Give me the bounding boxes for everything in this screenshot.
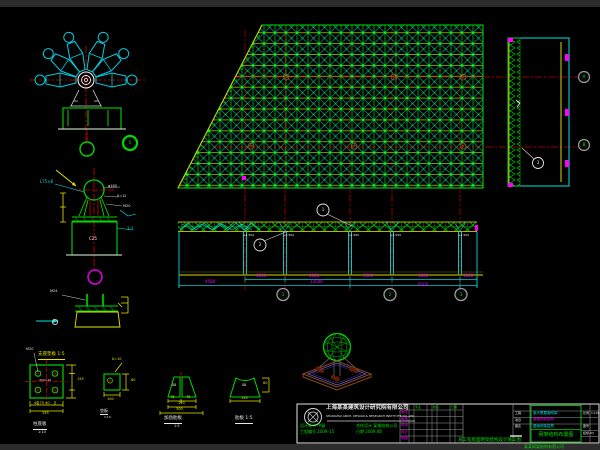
bottom-caption: 某某网架结构有限公司 xyxy=(524,445,564,449)
drawing-number: 结施-03 xyxy=(583,432,594,435)
detail-balloon-number: 1 xyxy=(319,208,327,212)
leader-label: δ=12 xyxy=(117,195,127,199)
dim-text: 150 xyxy=(178,402,185,406)
building-elevation xyxy=(178,195,483,301)
leader-label: δ=10 xyxy=(112,358,122,362)
sig-row-label: 校对 xyxy=(401,424,408,428)
anchor-pedestal-detail xyxy=(36,294,128,327)
grid-bubble-circle xyxy=(88,270,102,284)
sig-row-label: 审定 xyxy=(401,411,408,415)
grid-bubble-circle xyxy=(80,142,94,156)
certificate-line: 合作设计 某钢结构公司 xyxy=(356,424,397,428)
field-label: 比例 xyxy=(583,412,589,415)
bottom-caption: 某工程屋面网架结构设计施工图 xyxy=(458,439,521,444)
drawing-title: 网架结构布置图 xyxy=(531,433,581,438)
bolt-leader-label: M24 xyxy=(50,290,57,294)
grid-bubble-label: B xyxy=(580,143,588,147)
grid-bubble-label: 1 xyxy=(279,293,287,297)
thickness-label: δ8 xyxy=(172,384,176,388)
dim-text: 100 xyxy=(107,398,114,402)
dim-text: 60 xyxy=(131,379,135,383)
material-label: C25 xyxy=(89,237,97,241)
detail-scale: 1:10 xyxy=(38,431,46,435)
field-label: 图名 xyxy=(515,425,521,428)
dim-text: 3000 xyxy=(256,274,266,278)
washer-plate-detail xyxy=(104,363,129,397)
angle-leader-label: L75×6 xyxy=(40,180,53,184)
dim-text: 1500 xyxy=(463,274,473,278)
drawing-subtitle: 屋面网架结构 xyxy=(533,425,554,429)
dim-text: 4500 xyxy=(205,280,215,284)
sig-row-label: 审核 xyxy=(401,418,408,422)
field-label: 项目 xyxy=(515,419,521,422)
dim-text: 75 xyxy=(186,396,190,400)
detail-balloon-number: 2 xyxy=(256,243,264,247)
sig-header: 日期 xyxy=(451,406,457,409)
base-plate-detail xyxy=(25,353,76,413)
dim-text: 40 75 40 xyxy=(34,402,50,406)
grid-bubble-label: 2 xyxy=(386,293,394,297)
sig-header: 姓名 xyxy=(433,406,439,409)
dim-text: 300 xyxy=(176,408,183,412)
certificate-line: 工程编号 2009-15 xyxy=(300,430,334,434)
leader-label: M20 xyxy=(123,205,130,209)
level-mark: +4.500 xyxy=(283,234,294,237)
plate-size-label: -350×20 xyxy=(38,379,51,382)
leader-label: φ180 xyxy=(108,185,117,189)
detail-caption: 支座垫板 1:5 xyxy=(38,353,65,360)
level-mark: +4.500 xyxy=(243,234,254,237)
sig-row-label: 制图 xyxy=(401,437,408,441)
dim-text: 3000 xyxy=(363,274,373,278)
support-section-detail xyxy=(55,168,136,284)
dim-text: 155 xyxy=(42,412,49,416)
scale-value: 1:100 xyxy=(591,412,600,415)
grid-bubble-label: 3 xyxy=(457,293,465,297)
isometric-support-node xyxy=(303,334,371,391)
company-name-cn: 上海某某建筑设计研究院有限公司 xyxy=(326,406,409,412)
section-tag: 1-1 xyxy=(127,227,134,231)
dim-text: 75 xyxy=(170,396,174,400)
detail-balloon-number: 5 xyxy=(126,141,134,145)
field-label: 工程 xyxy=(515,412,521,415)
sig-header: 专业 xyxy=(415,406,421,409)
level-mark: +4.500 xyxy=(390,234,401,237)
field-label: 图号 xyxy=(583,425,589,428)
detail-scale: 1:10 xyxy=(104,416,111,419)
detail-caption: 肋板 1:5 xyxy=(235,417,253,424)
detail-caption: 加劲肋板 xyxy=(164,417,182,424)
cad-drawing-sheet: 5 L75×6 φ180 δ=12 M20 1-1 C25 M24 支座垫板 1… xyxy=(0,0,600,450)
bolt-leader-label: M20 xyxy=(26,348,33,352)
linework-layer xyxy=(0,0,600,450)
sig-row-label: 设计 xyxy=(401,431,408,435)
level-mark: +4.500 xyxy=(458,234,469,237)
grid-bubble-label: A xyxy=(580,75,588,79)
dim-text: 6000 xyxy=(309,274,319,278)
side-section-view xyxy=(508,38,590,187)
dim-text: 150 xyxy=(241,397,248,401)
dim-text: 6000 xyxy=(418,274,428,278)
detail-caption: 柱底板 xyxy=(33,423,47,430)
detail-scale: 1:5 xyxy=(174,425,180,429)
certificate-line: 设计证书 甲级 xyxy=(300,424,325,428)
certificate-line: 日期 2009.08 xyxy=(356,430,382,434)
dim-text: 155 xyxy=(77,378,84,382)
dim-text: 60 xyxy=(263,382,267,386)
spider-node-detail xyxy=(30,30,146,156)
dim-text: 13500 xyxy=(310,280,323,284)
dim-text: 6000 xyxy=(418,283,428,287)
level-mark: +4.500 xyxy=(348,234,359,237)
thickness-label: δ8 xyxy=(242,384,246,388)
detail-balloon-number: 3 xyxy=(534,161,542,165)
item-name: 屋面网架结构 xyxy=(533,418,554,422)
project-name: 某大厦屋面网架 xyxy=(533,412,558,416)
